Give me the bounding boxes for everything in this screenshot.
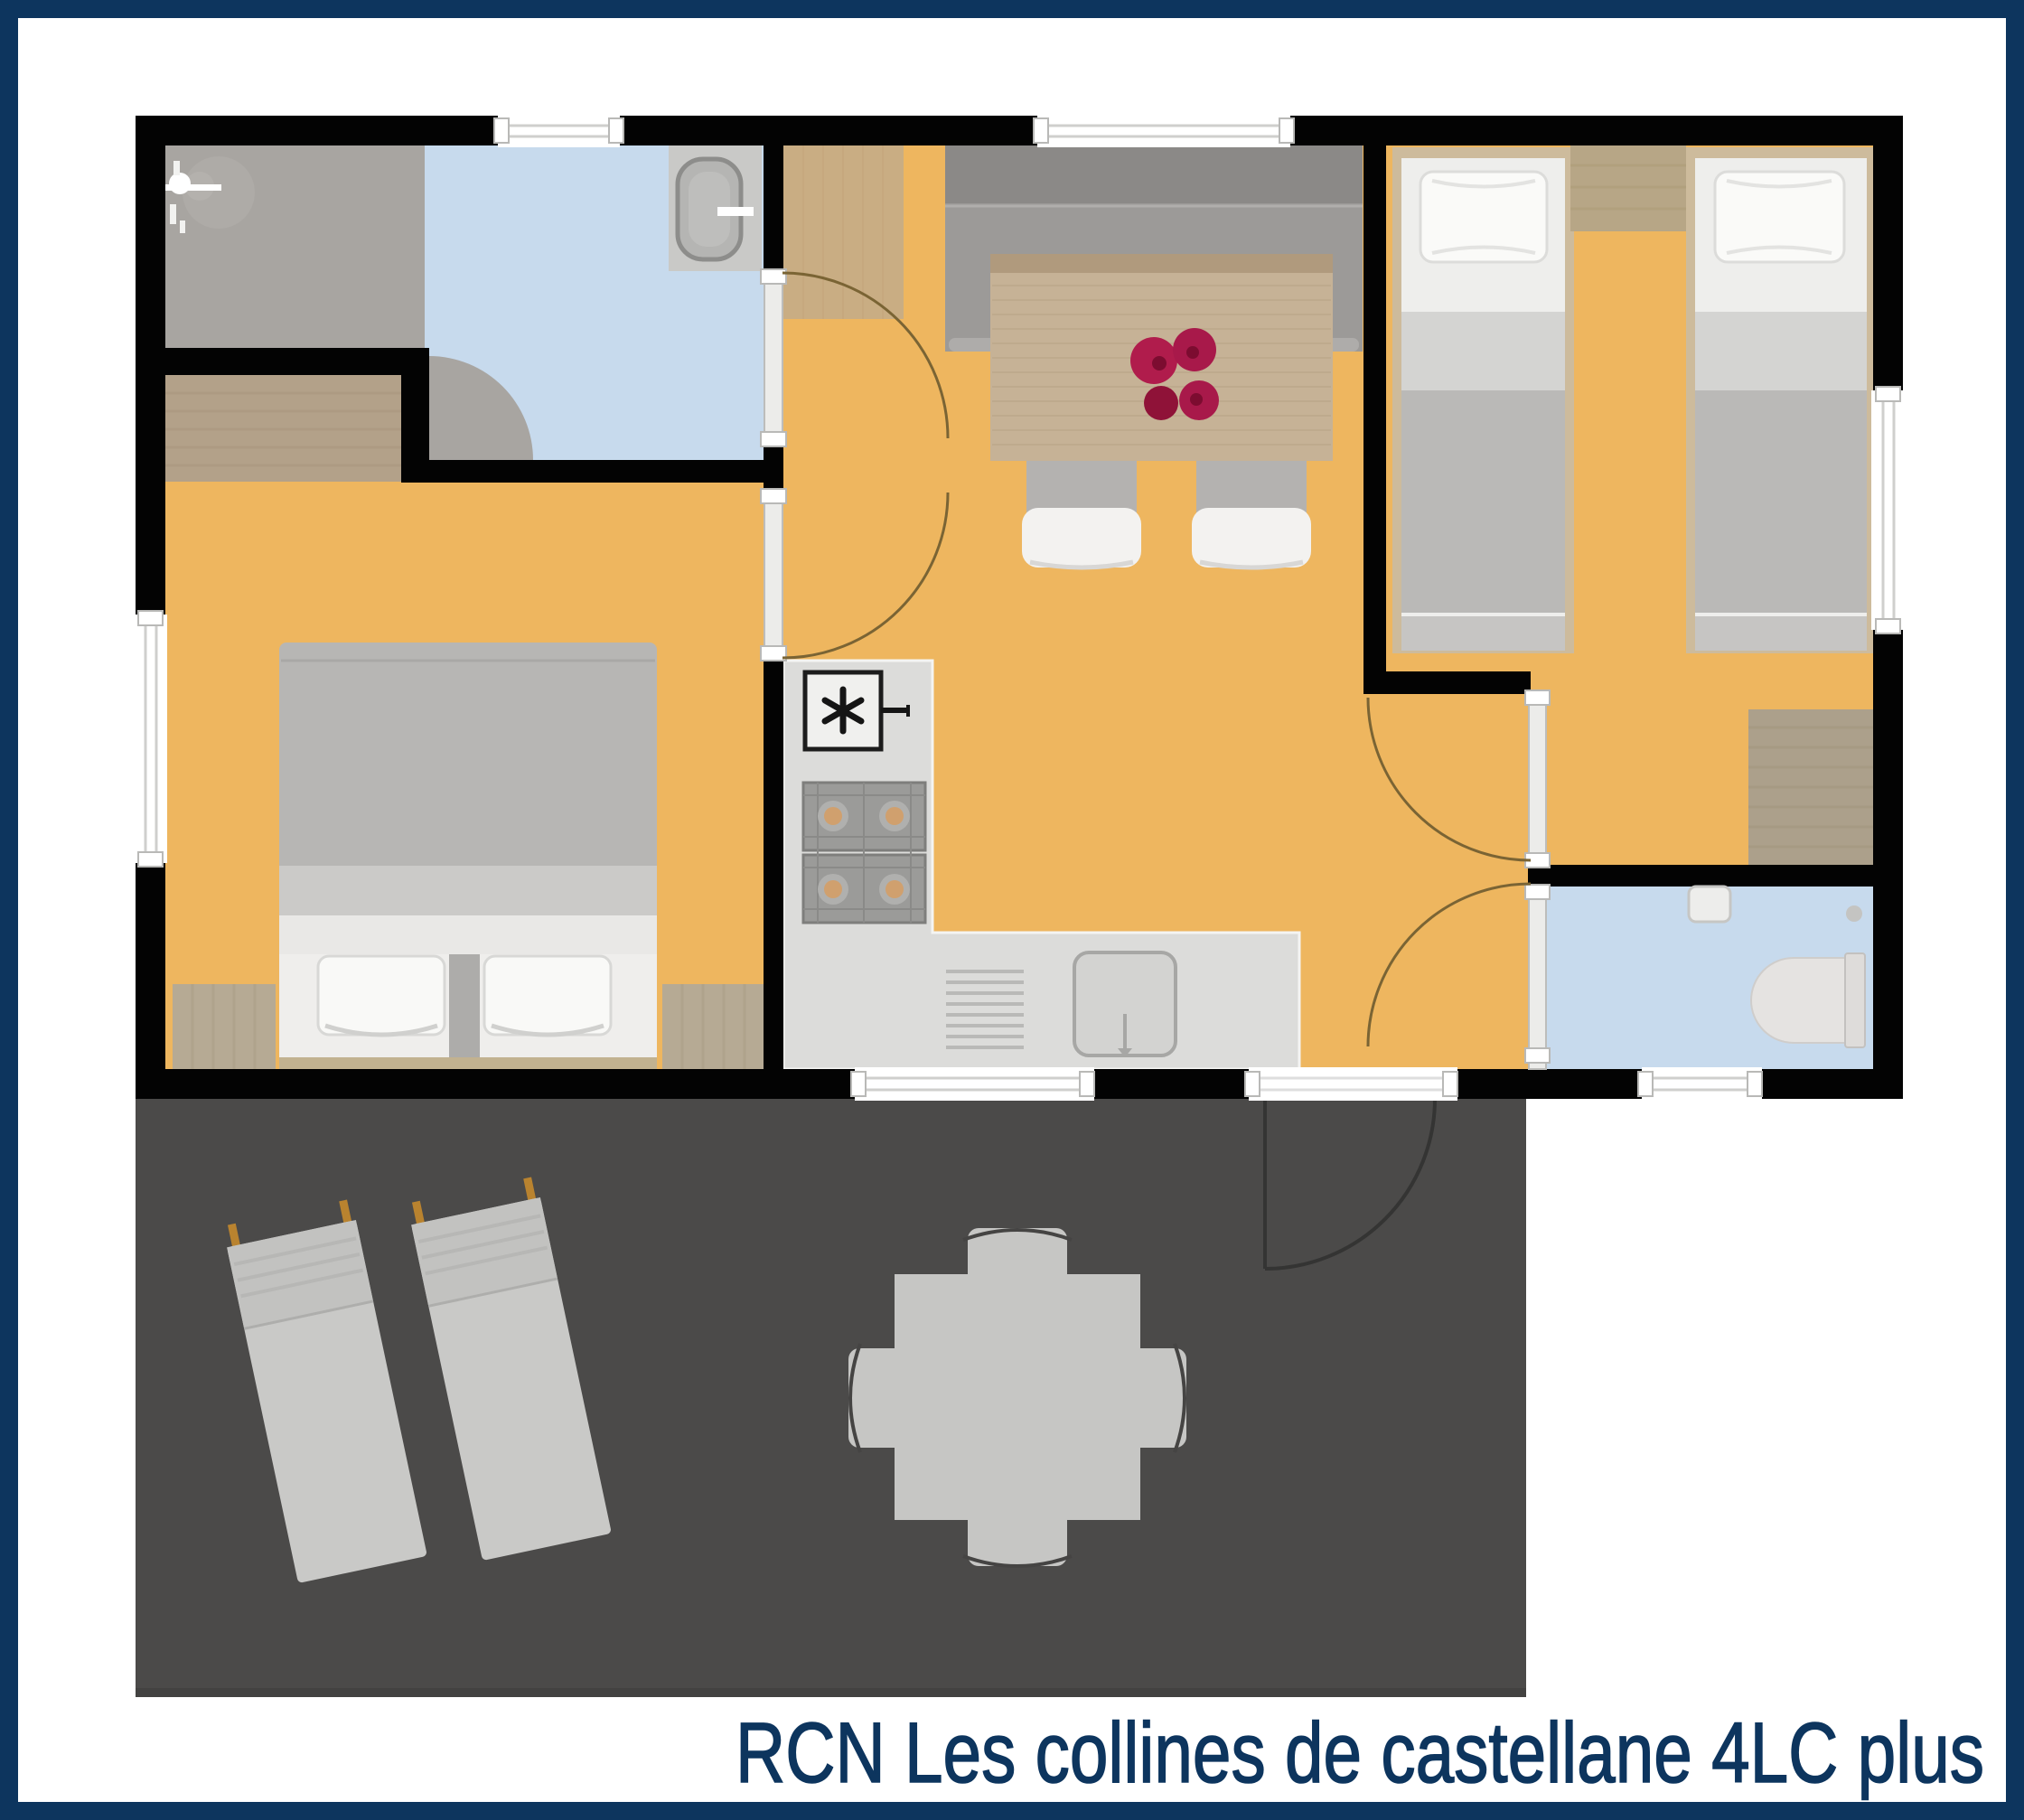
- svg-text:RCN Les collines de castellane: RCN Les collines de castellane 4LC plus: [736, 1705, 1984, 1801]
